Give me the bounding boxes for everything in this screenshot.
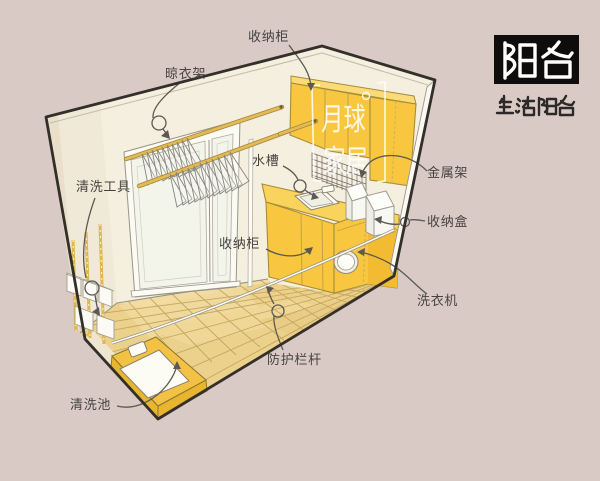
svg-text:收纳盒: 收纳盒: [427, 214, 468, 229]
svg-text:水槽: 水槽: [252, 153, 279, 168]
svg-text:清洗工具: 清洗工具: [76, 179, 131, 194]
svg-text:洗衣机: 洗衣机: [417, 293, 458, 308]
svg-text:收纳柜: 收纳柜: [219, 236, 260, 251]
svg-text:清洗池: 清洗池: [70, 397, 111, 412]
svg-text:金属架: 金属架: [427, 165, 468, 180]
svg-text:防护栏杆: 防护栏杆: [267, 352, 322, 367]
svg-text:收纳柜: 收纳柜: [248, 29, 289, 44]
svg-text:晾衣架: 晾衣架: [165, 66, 206, 81]
svg-text:月球: 月球: [321, 102, 366, 136]
